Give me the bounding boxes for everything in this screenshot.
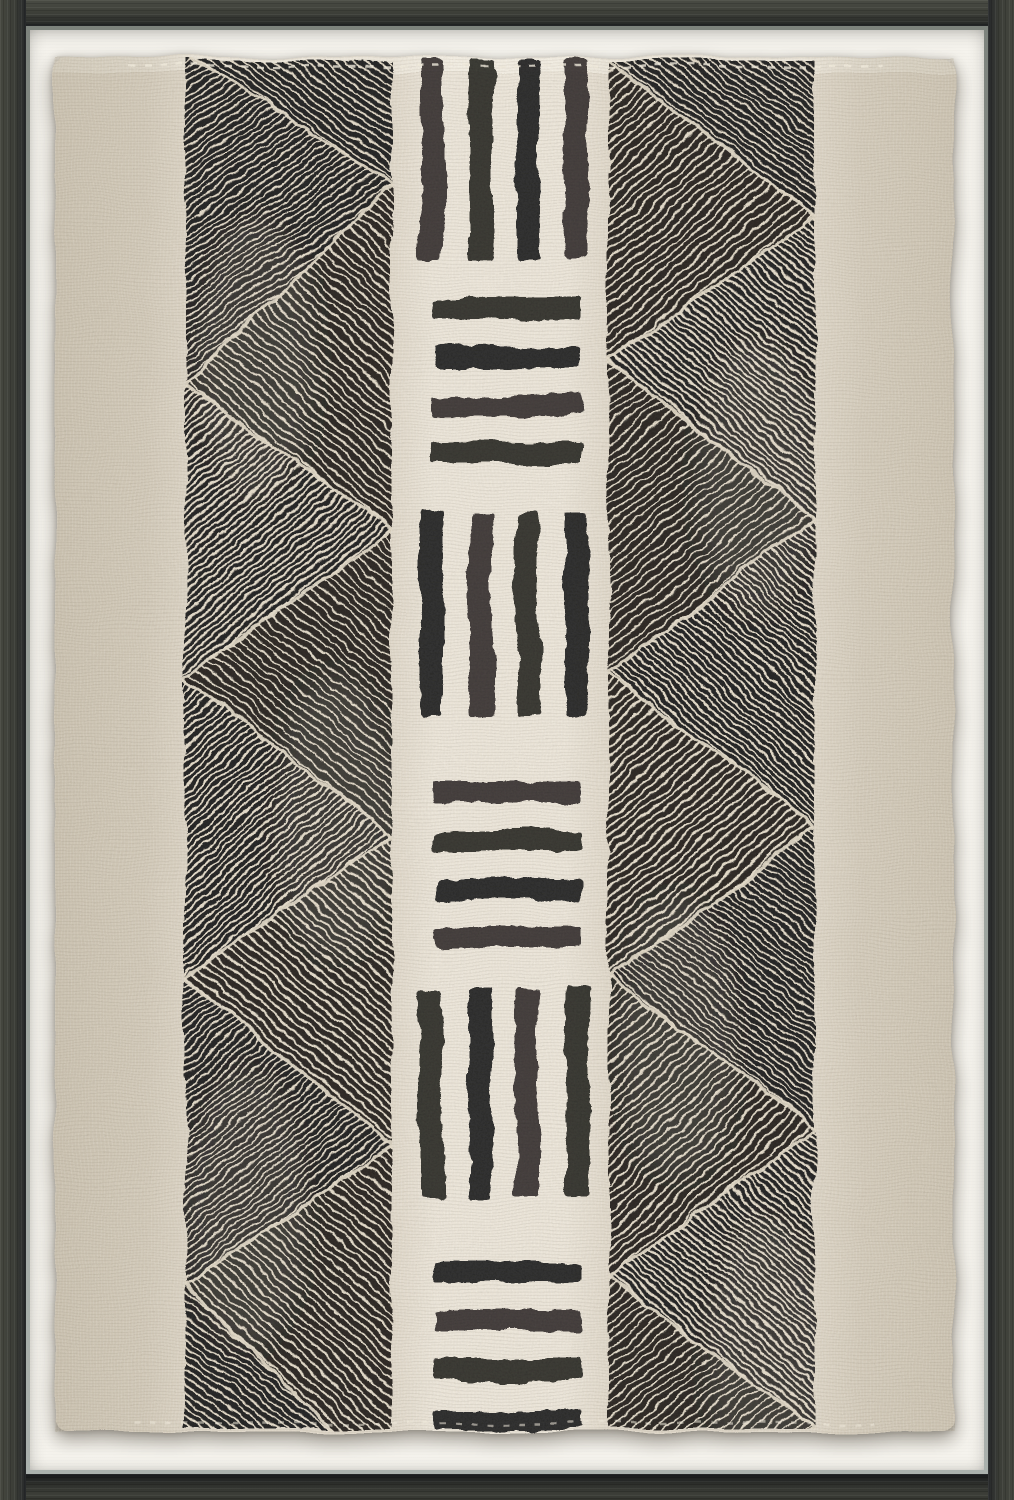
frame-left-rail bbox=[0, 0, 26, 1500]
frame-bottom-rail bbox=[0, 1474, 1014, 1500]
cloth bbox=[55, 0, 953, 1500]
textile-panel bbox=[55, 57, 953, 1432]
frame-right-rail bbox=[988, 0, 1014, 1500]
fabric-grain-light bbox=[55, 57, 953, 1432]
frame-top-rail bbox=[0, 0, 1014, 26]
framed-artwork bbox=[0, 0, 1014, 1500]
